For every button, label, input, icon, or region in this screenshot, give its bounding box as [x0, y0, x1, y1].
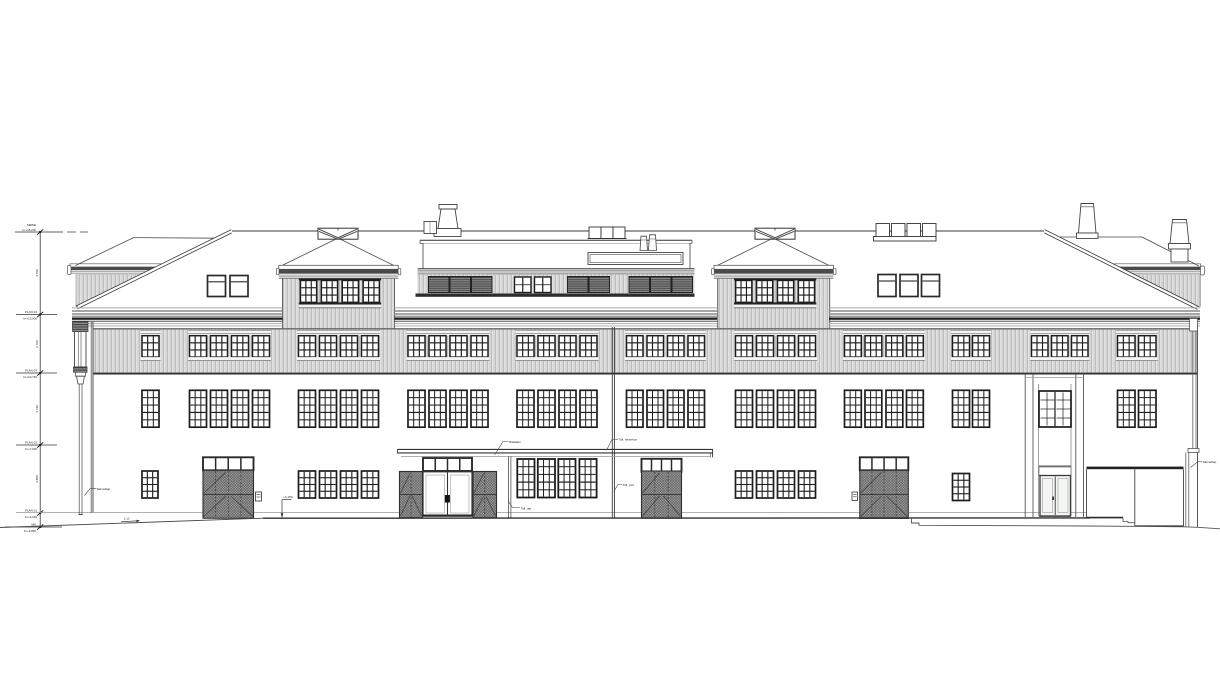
svg-text:1:12: 1:12	[124, 516, 130, 520]
svg-text:2 760: 2 760	[35, 340, 39, 348]
svg-text:Tidl. heisehus: Tidl. heisehus	[619, 438, 638, 442]
svg-text:+3,150: +3,150	[283, 495, 293, 499]
svg-text:k=+7,000: k=+7,000	[25, 447, 37, 451]
svg-text:PLAN 03: PLAN 03	[25, 368, 37, 372]
svg-text:k=+10,740: k=+10,740	[23, 375, 37, 379]
svg-text:4 700: 4 700	[35, 269, 39, 277]
svg-text:k=+18,200: k=+18,200	[22, 228, 36, 232]
svg-text:k=+2,800: k=+2,800	[24, 529, 36, 533]
svg-text:PLAN 02: PLAN 02	[25, 440, 37, 444]
svg-text:Baldakin: Baldakin	[509, 440, 521, 444]
svg-text:Taknedløp: Taknedløp	[1203, 460, 1217, 464]
svg-text:Taknedløp: Taknedløp	[97, 487, 111, 491]
svg-text:k=+13,500: k=+13,500	[23, 316, 37, 320]
svg-text:3 800: 3 800	[35, 475, 39, 483]
svg-text:PLAN 04: PLAN 04	[25, 310, 37, 314]
svg-text:Tidl. dør: Tidl. dør	[521, 506, 532, 510]
svg-text:3 740: 3 740	[35, 405, 39, 413]
svg-text:MØNE: MØNE	[27, 223, 36, 227]
svg-text:k=+3,200: k=+3,200	[25, 515, 37, 519]
svg-text:PLAN 01: PLAN 01	[25, 508, 37, 512]
svg-text:Tidl. port: Tidl. port	[623, 483, 635, 487]
